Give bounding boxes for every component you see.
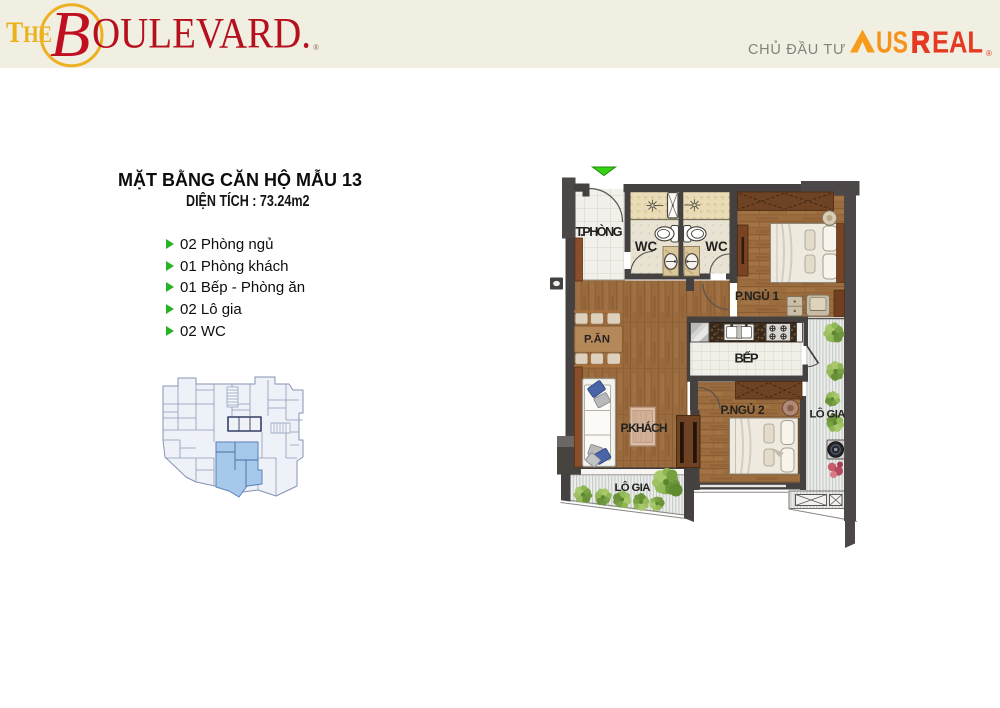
svg-text:WC: WC	[705, 239, 728, 254]
svg-text:LÔ GIA: LÔ GIA	[810, 408, 846, 421]
svg-text:P.KHÁCH: P.KHÁCH	[621, 420, 668, 435]
svg-text:BẾP: BẾP	[735, 351, 759, 366]
svg-text:LÔ GIA: LÔ GIA	[615, 481, 651, 494]
svg-text:T.PHÒNG: T.PHÒNG	[576, 224, 623, 239]
svg-text:P.NGỦ 2: P.NGỦ 2	[721, 403, 765, 417]
svg-text:P.ĂN: P.ĂN	[584, 333, 610, 346]
svg-text:P.NGỦ 1: P.NGỦ 1	[735, 289, 779, 303]
svg-text:WC: WC	[635, 239, 658, 254]
